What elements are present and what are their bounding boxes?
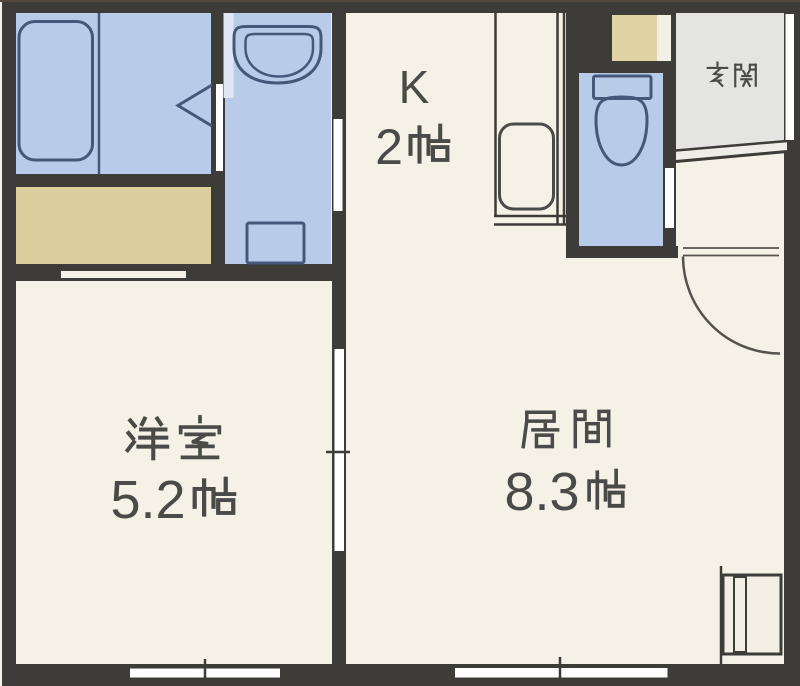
svg-text:2: 2 [375,119,403,175]
svg-text:K: K [399,61,430,113]
svg-text:5.2: 5.2 [110,470,185,530]
svg-text:8.3: 8.3 [504,462,579,522]
